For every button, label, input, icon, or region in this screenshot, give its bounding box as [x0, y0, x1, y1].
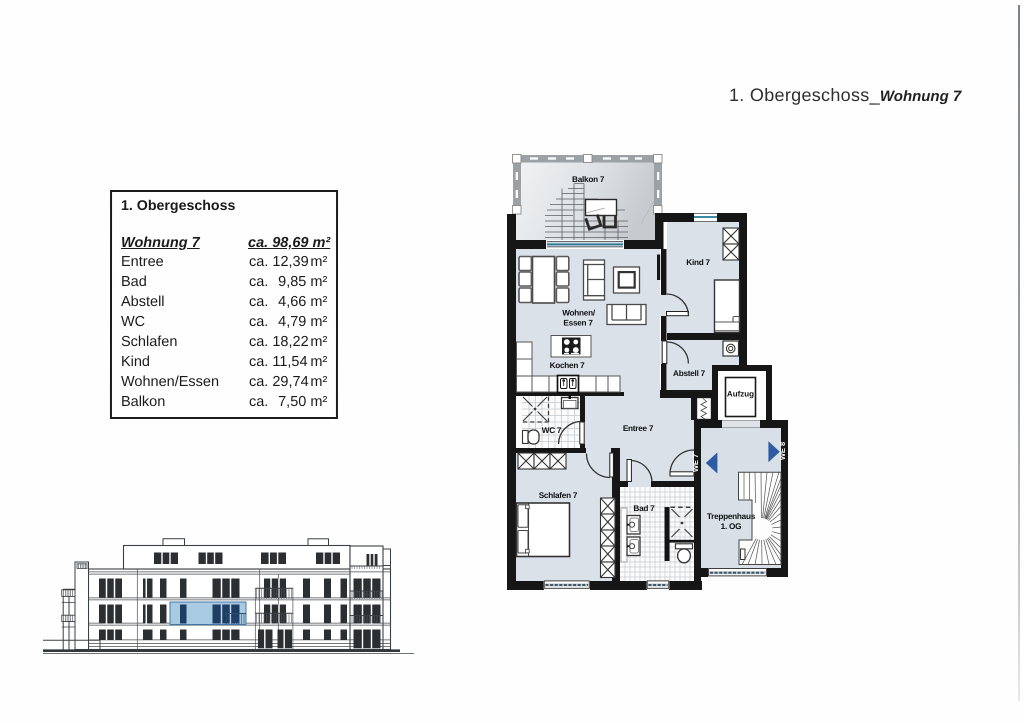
svg-text:WC 7: WC 7 — [542, 426, 562, 435]
svg-text:WE 7: WE 7 — [691, 454, 700, 472]
svg-text:Treppenhaus: Treppenhaus — [707, 512, 756, 521]
svg-text:Schlafen 7: Schlafen 7 — [539, 491, 578, 500]
svg-text:1. OG: 1. OG — [721, 522, 742, 531]
svg-text:Abstell 7: Abstell 7 — [673, 369, 706, 378]
svg-text:Wohnen/: Wohnen/ — [562, 308, 596, 317]
svg-text:Entree 7: Entree 7 — [623, 424, 654, 433]
svg-text:Bad 7: Bad 7 — [633, 504, 655, 513]
svg-text:Kind 7: Kind 7 — [686, 258, 710, 267]
svg-text:Aufzug: Aufzug — [727, 389, 754, 398]
svg-text:Kochen 7: Kochen 7 — [550, 361, 586, 370]
svg-text:Balkon 7: Balkon 7 — [572, 175, 605, 184]
svg-text:WE 8: WE 8 — [778, 442, 787, 460]
svg-text:Essen 7: Essen 7 — [563, 318, 593, 327]
